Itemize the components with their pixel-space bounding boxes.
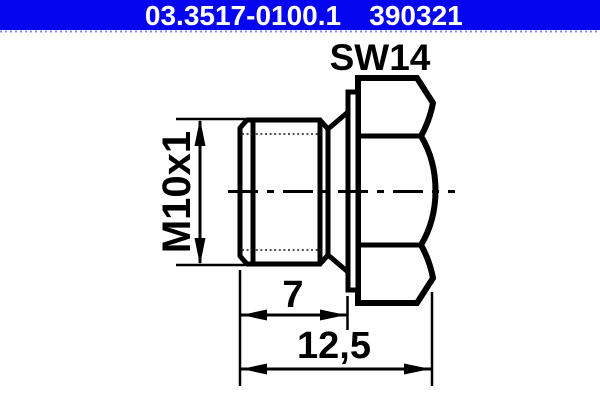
cone-transition-line-top	[328, 112, 348, 129]
thread-length-label: 7	[282, 274, 303, 316]
dimension-overall-length: 12,5	[240, 292, 432, 386]
arrowhead-left-icon	[242, 310, 268, 321]
screenshot-stage: 03.3517-0100.1 390321 M10x1 SW14	[0, 0, 600, 400]
wrench-size-label: SW14	[330, 37, 431, 78]
arrowhead-right-icon	[404, 364, 431, 375]
overall-length-label: 12,5	[297, 325, 371, 367]
catalog-number-text: 390321	[369, 0, 462, 31]
thread-size-label: M10x1	[155, 131, 199, 253]
part-number-text: 03.3517-0100.1	[145, 0, 341, 31]
arrowhead-left-icon	[242, 364, 268, 375]
technical-drawing-canvas: 03.3517-0100.1 390321 M10x1 SW14	[0, 0, 600, 400]
arrowhead-right-icon	[320, 310, 346, 321]
cone-transition-line-bottom	[328, 255, 348, 272]
